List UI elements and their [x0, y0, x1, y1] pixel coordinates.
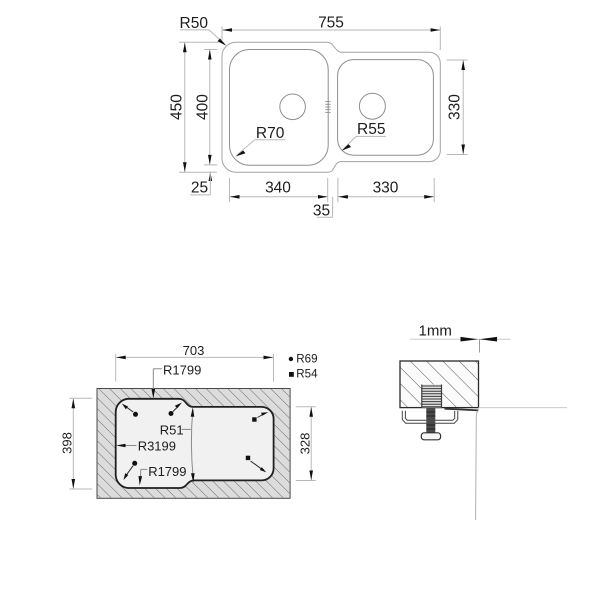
svg-text:R51: R51 — [160, 422, 184, 437]
svg-text:R1799: R1799 — [148, 464, 186, 479]
svg-text:R55: R55 — [357, 121, 385, 138]
svg-text:R3199: R3199 — [138, 438, 176, 453]
svg-text:755: 755 — [318, 15, 344, 32]
svg-text:450: 450 — [169, 94, 186, 120]
svg-text:398: 398 — [60, 432, 75, 454]
svg-text:R54: R54 — [296, 368, 318, 381]
svg-text:R69: R69 — [296, 353, 317, 366]
svg-text:25: 25 — [191, 180, 208, 197]
svg-text:400: 400 — [195, 94, 212, 120]
svg-text:35: 35 — [313, 203, 330, 220]
svg-text:330: 330 — [373, 179, 399, 196]
svg-text:703: 703 — [183, 343, 205, 358]
svg-text:340: 340 — [265, 179, 291, 196]
svg-text:1mm: 1mm — [419, 322, 452, 339]
svg-text:328: 328 — [298, 433, 313, 455]
svg-text:R1799: R1799 — [163, 363, 201, 378]
svg-text:330: 330 — [447, 94, 464, 120]
